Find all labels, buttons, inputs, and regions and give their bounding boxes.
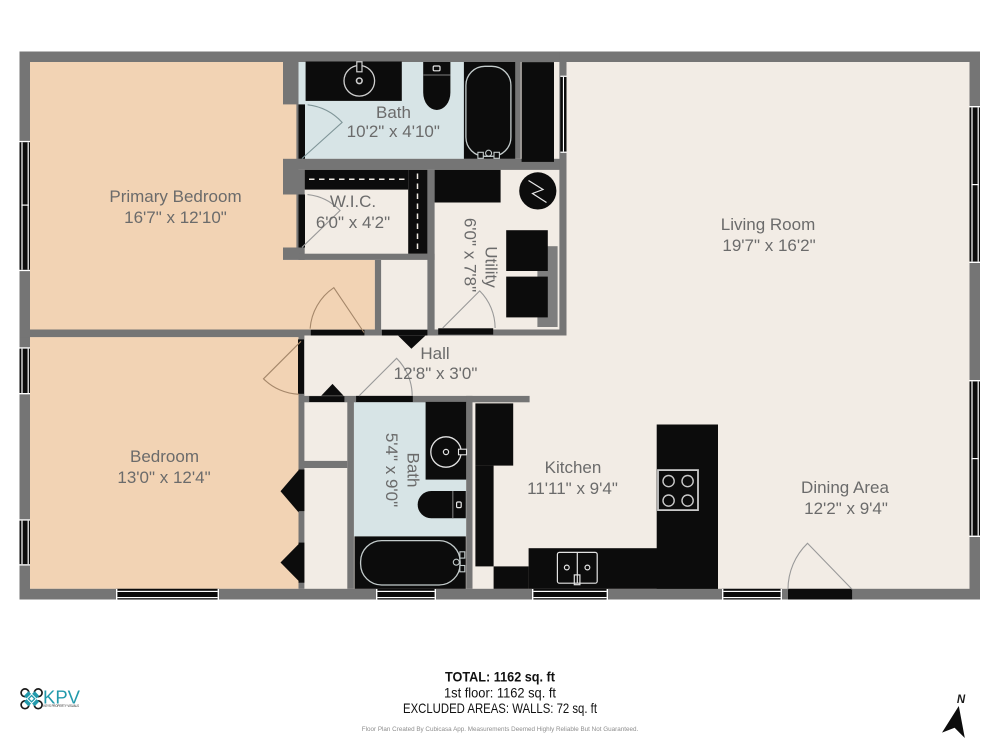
svg-text:12'8" x 3'0": 12'8" x 3'0"	[394, 364, 478, 383]
svg-text:12'2" x 9'4": 12'2" x 9'4"	[804, 499, 888, 518]
svg-text:KEYS PROPERTY VISUALS: KEYS PROPERTY VISUALS	[44, 704, 80, 708]
svg-text:W.I.C.: W.I.C.	[330, 192, 376, 211]
svg-text:5'4" x 9'0": 5'4" x 9'0"	[382, 433, 401, 507]
svg-text:6'0" x 7'8": 6'0" x 7'8"	[461, 218, 480, 292]
svg-text:Kitchen: Kitchen	[545, 458, 602, 477]
svg-text:11'11" x 9'4": 11'11" x 9'4"	[527, 479, 618, 498]
svg-text:Dining Area: Dining Area	[801, 478, 889, 497]
svg-text:13'0" x 12'4": 13'0" x 12'4"	[117, 468, 210, 487]
svg-text:6'0" x 4'2": 6'0" x 4'2"	[316, 213, 390, 232]
svg-text:1st floor: 1162 sq. ft: 1st floor: 1162 sq. ft	[444, 686, 556, 701]
svg-text:Hall: Hall	[420, 344, 449, 363]
svg-text:16'7" x 12'10": 16'7" x 12'10"	[124, 208, 227, 227]
svg-text:Bath: Bath	[376, 103, 411, 122]
svg-text:Floor Plan Created By Cubicasa: Floor Plan Created By Cubicasa App. Meas…	[362, 726, 639, 733]
svg-text:Living Room: Living Room	[721, 215, 816, 234]
svg-text:N: N	[957, 694, 966, 706]
svg-text:TOTAL: 1162 sq. ft: TOTAL: 1162 sq. ft	[445, 670, 555, 685]
svg-text:Primary Bedroom: Primary Bedroom	[109, 187, 241, 206]
svg-text:EXCLUDED AREAS: WALLS: 72 sq.: EXCLUDED AREAS: WALLS: 72 sq. ft	[403, 701, 597, 716]
svg-text:10'2" x 4'10": 10'2" x 4'10"	[347, 122, 440, 141]
svg-text:19'7" x 16'2": 19'7" x 16'2"	[722, 236, 815, 255]
svg-text:Utility: Utility	[482, 246, 501, 288]
svg-text:Bath: Bath	[404, 453, 423, 488]
svg-text:Bedroom: Bedroom	[130, 447, 199, 466]
